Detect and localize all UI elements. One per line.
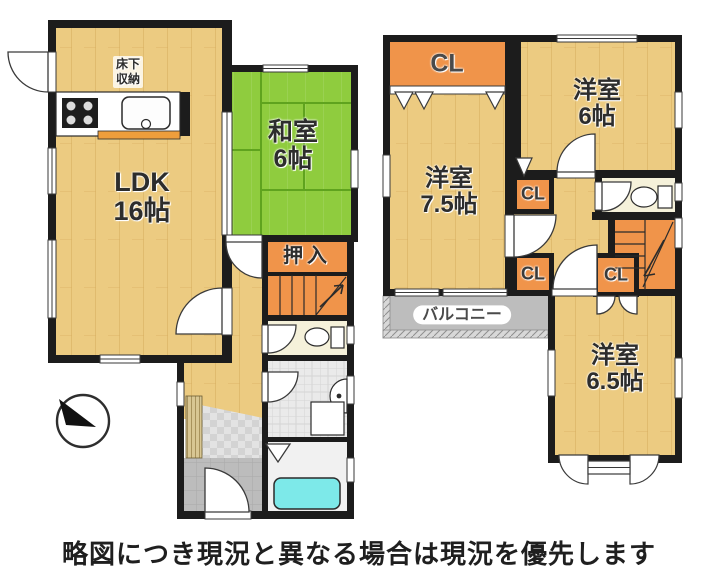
toilet-1f-bowl [305,328,329,346]
toilet-2f-tank [658,186,672,208]
closet-bottom-right [598,258,634,292]
toilet-2f-bowl [631,187,657,207]
kitchen [56,92,180,139]
bedroom-6-5-room [555,296,675,455]
compass [57,395,109,447]
oshiire-closet [268,242,347,272]
closet-top [390,42,505,86]
toilet-1f-tank [331,327,344,348]
floor1-plan [8,20,358,519]
faucet [142,120,151,129]
washing-machine-pan [311,402,344,435]
balcony [390,296,548,330]
floor2-plan [383,35,682,484]
floor-plan-image: LDK 16帖 和室 6帖 押入 床下 収納 CL 洋室 7.5帖 洋室 6帖 … [0,0,719,576]
floor-plan-drawing [0,0,719,576]
tatami-room [232,72,351,235]
bedroom-6-room [521,42,675,170]
stove [62,98,98,128]
counter-edge [98,131,180,139]
closet-bottom-left [517,258,549,290]
bathtub [274,478,340,509]
bedroom-7-5-room [390,90,505,289]
fixtures-2f [631,186,672,208]
entrance-wood-step [186,396,202,458]
kitchen-door-arc [8,52,48,92]
closet-mid [517,180,549,209]
